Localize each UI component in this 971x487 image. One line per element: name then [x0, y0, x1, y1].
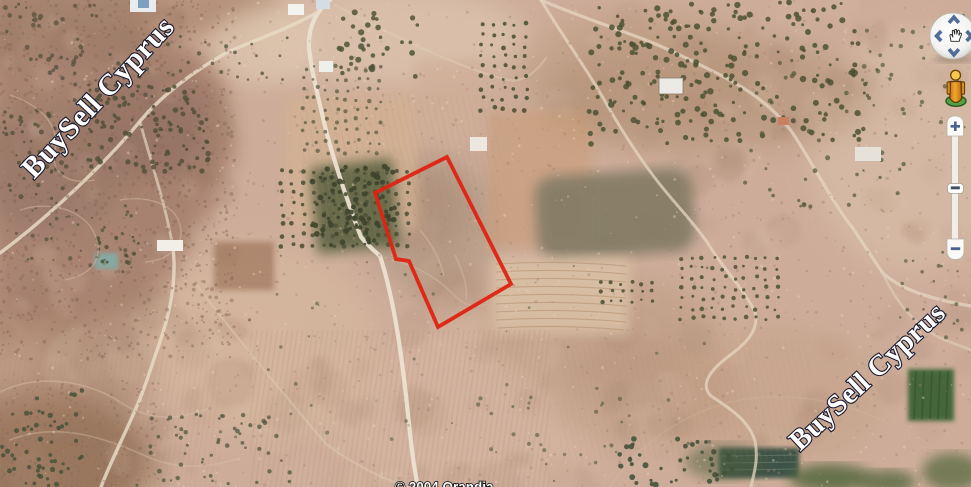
svg-text:© 2004 Orandia: © 2004 Orandia: [395, 480, 494, 487]
